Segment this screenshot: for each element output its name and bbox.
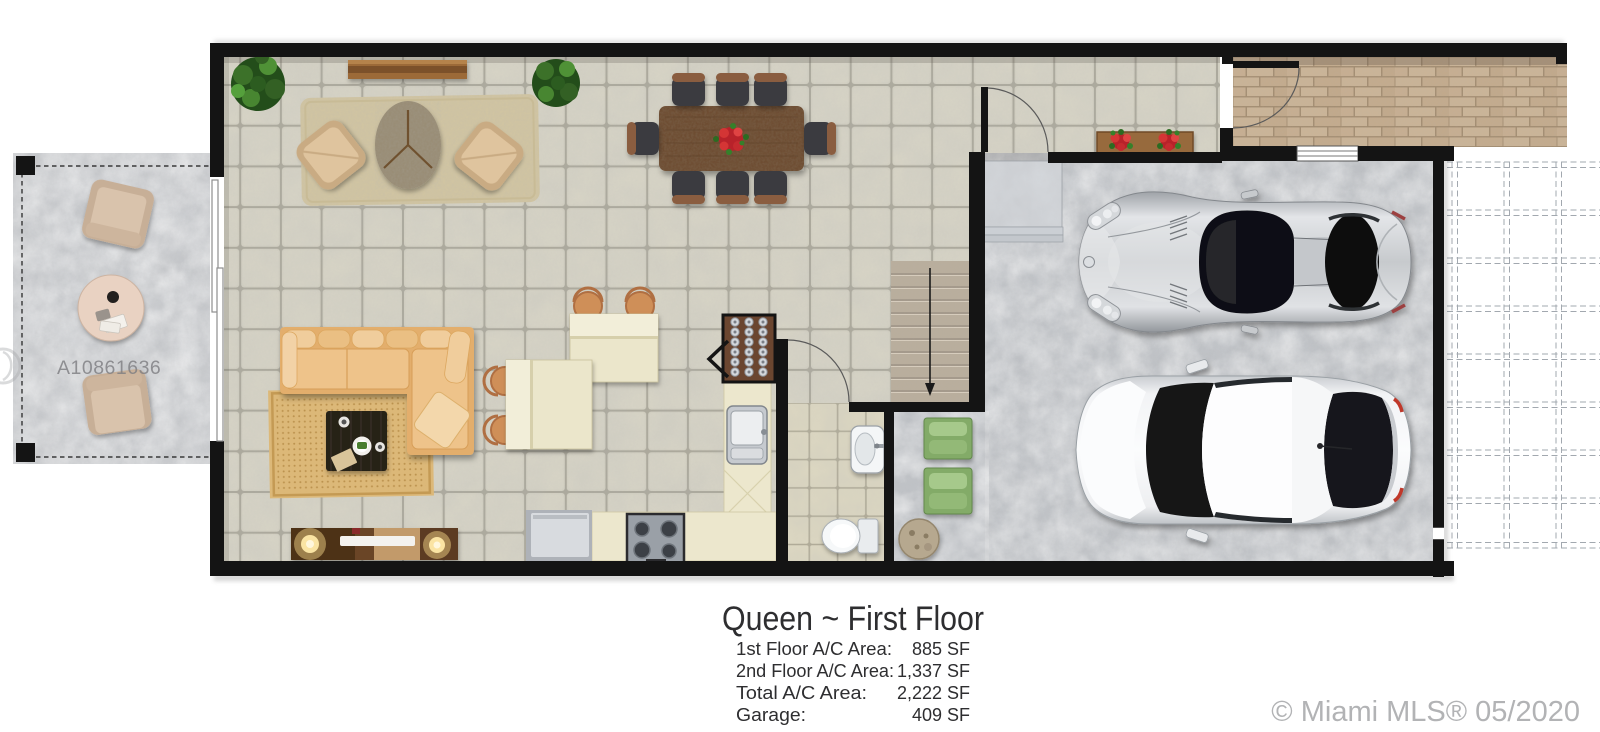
svg-text:2,222 SF: 2,222 SF — [897, 683, 970, 703]
svg-text:Garage:: Garage: — [736, 705, 806, 725]
svg-text:© Miami MLS® 05/2020: © Miami MLS® 05/2020 — [1271, 696, 1580, 728]
svg-text:409 SF: 409 SF — [912, 705, 970, 725]
svg-text:Total A/C Area:: Total A/C Area: — [736, 683, 867, 703]
svg-text:1st Floor A/C Area:: 1st Floor A/C Area: — [736, 639, 892, 659]
svg-text:Queen ~ First Floor: Queen ~ First Floor — [722, 600, 984, 638]
svg-text:885 SF: 885 SF — [912, 639, 970, 659]
svg-text:1,337 SF: 1,337 SF — [897, 661, 970, 681]
svg-text:2nd Floor A/C Area:: 2nd Floor A/C Area: — [736, 661, 894, 681]
svg-text:A10861636: A10861636 — [57, 357, 161, 379]
